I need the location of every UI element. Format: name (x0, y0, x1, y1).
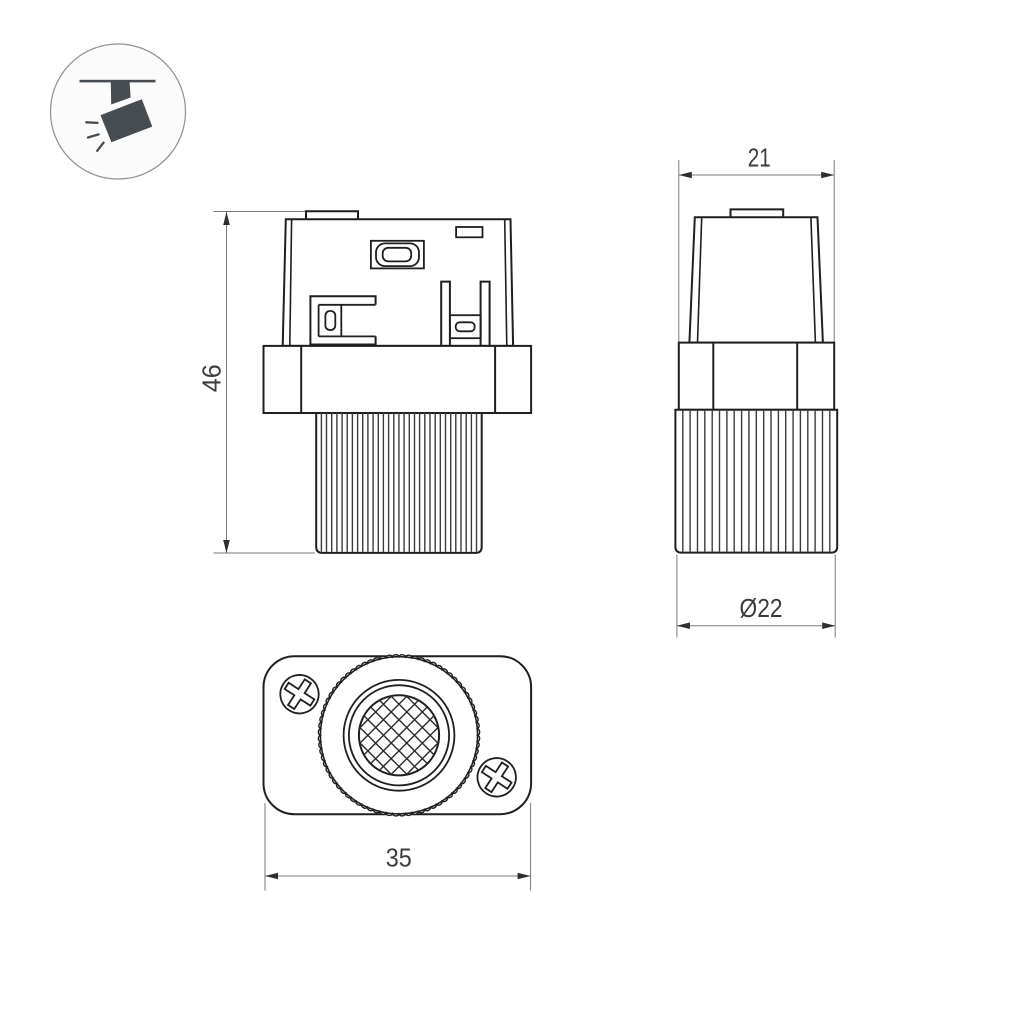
svg-text:35: 35 (386, 843, 412, 873)
svg-text:Ø22: Ø22 (740, 593, 783, 623)
svg-text:21: 21 (748, 143, 771, 173)
svg-text:46: 46 (197, 364, 227, 392)
